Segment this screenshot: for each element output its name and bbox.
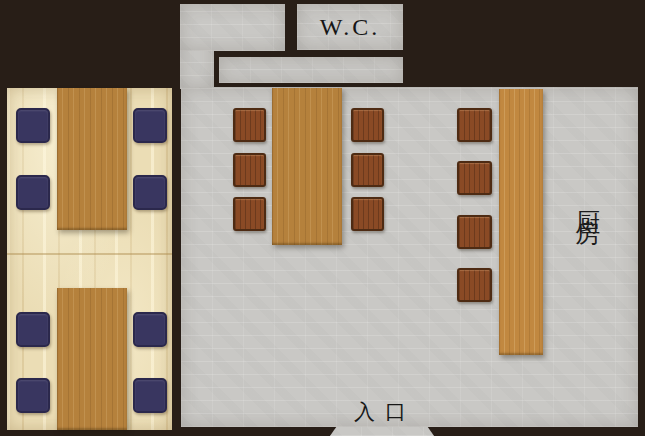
chair [351,197,384,231]
dining-floor: 厨房 入口 [181,87,638,427]
chair [233,197,266,231]
tatami-mat-seam [7,253,172,255]
kitchen-counter [499,89,543,355]
counter-stool [457,215,492,249]
cushion [133,108,167,143]
entrance-opening [330,427,434,436]
chair [233,153,266,187]
counter-stool [457,161,492,195]
kitchen-label: 厨房 [571,191,604,207]
cushion [16,175,50,210]
chair [351,108,384,142]
chair [351,153,384,187]
wc-room: W.C. [297,4,403,50]
cushion [16,108,50,143]
wc-label: W.C. [297,4,403,50]
wc-corridor [219,57,403,83]
cushion [133,312,167,347]
vestibule-top-arm [180,4,285,51]
cushion [133,378,167,413]
cushion [133,175,167,210]
chair [233,108,266,142]
dining-table [272,88,342,245]
tatami-table-1 [57,88,127,230]
cushion [16,378,50,413]
entrance-label: 入口 [300,398,460,426]
tatami-room [7,88,172,430]
counter-stool [457,108,492,142]
cushion [16,312,50,347]
tatami-table-2 [57,288,127,430]
restaurant-floor-plan: W.C. 厨房 入口 [0,0,645,436]
counter-stool [457,268,492,302]
